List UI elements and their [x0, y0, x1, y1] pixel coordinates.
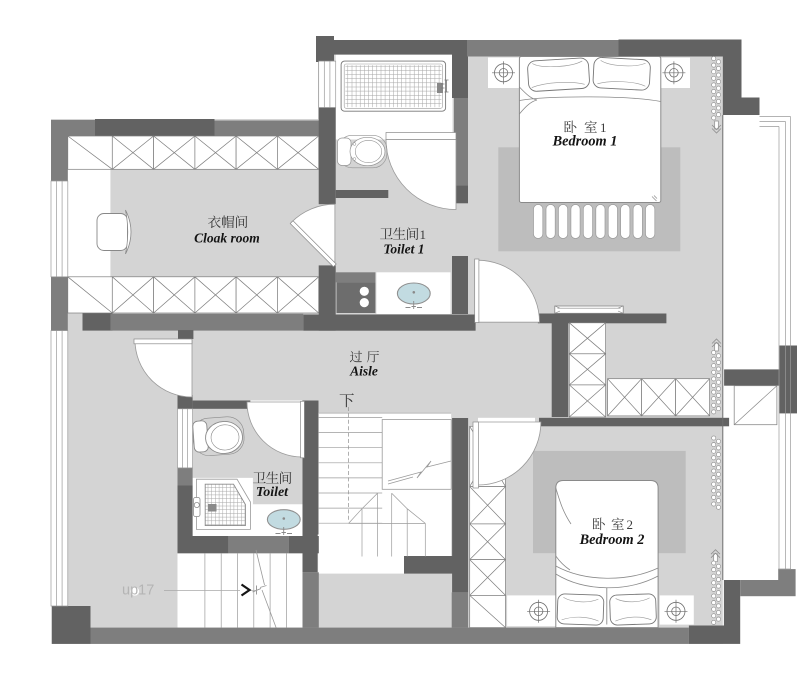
svg-text:up17: up17 [122, 583, 154, 599]
svg-text:Toilet 1: Toilet 1 [383, 242, 424, 257]
svg-text:Bedroom 1: Bedroom 1 [552, 134, 618, 150]
svg-text:Cloak room: Cloak room [194, 231, 260, 246]
svg-text:Toilet: Toilet [256, 485, 289, 500]
svg-text:Bedroom 2: Bedroom 2 [579, 532, 645, 548]
svg-text:1: 1 [420, 227, 427, 242]
svg-text:Aisle: Aisle [349, 364, 378, 379]
svg-text:2: 2 [627, 517, 634, 532]
